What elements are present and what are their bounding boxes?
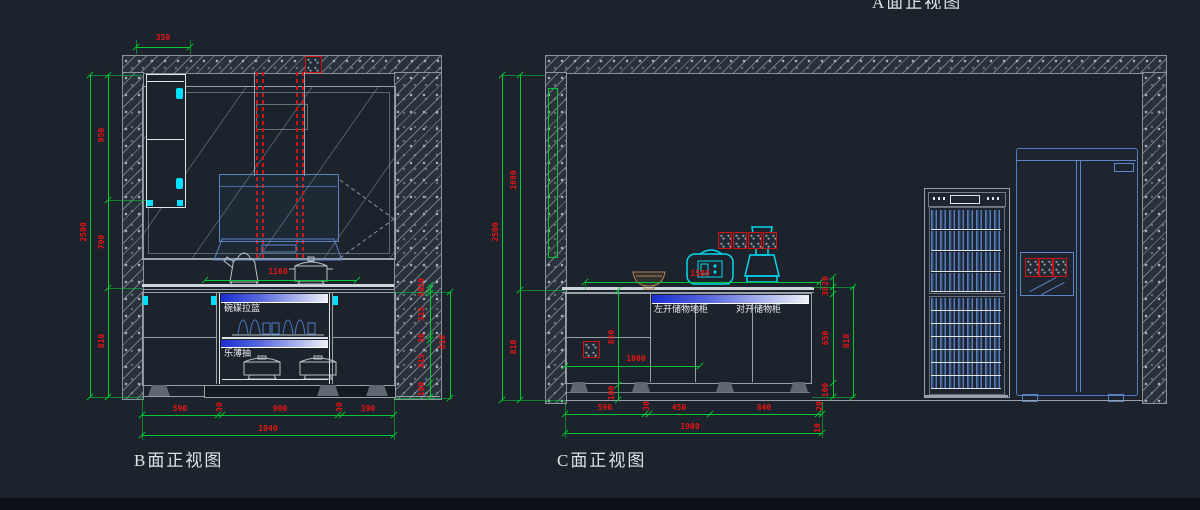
wine-cabinet-knobs (933, 197, 945, 200)
pots-in-drawer-icon (238, 352, 350, 380)
wall-left-b (122, 72, 144, 400)
dim-text: 590 (173, 405, 187, 413)
countertop-b-line (142, 289, 394, 290)
duct-side-line (254, 72, 255, 176)
outlet-icon (1025, 258, 1039, 277)
drawer-rail (219, 293, 220, 384)
outlet-icon (763, 232, 777, 249)
range-hood-body (219, 174, 339, 242)
dim-text: 1500 (690, 270, 709, 278)
view-c-title: C面正视图 (557, 446, 646, 471)
dim-ext-line (502, 400, 565, 401)
countertop-b (142, 284, 394, 287)
hood-projection-dashed (338, 176, 396, 262)
dim-text: 2500 (80, 222, 88, 241)
dim-tick (353, 276, 360, 283)
fridge-foot (1108, 394, 1124, 402)
wine-bottles-row (931, 350, 1001, 363)
dim-text: 810 (439, 335, 447, 349)
dim-text: 30 (216, 402, 224, 412)
dim-ext-line (520, 290, 565, 291)
wine-bottles-row (931, 337, 1001, 350)
view-a-title: A面正视图 (872, 0, 962, 9)
cabinet-hinge-icon (211, 296, 216, 305)
wine-bottles-row (931, 231, 1001, 251)
dim-text: 1940 (258, 425, 277, 433)
dim-text: 390 (361, 405, 375, 413)
wine-bottles-row (931, 363, 1001, 376)
base-divider (650, 293, 651, 382)
dim-text: 100 (822, 383, 830, 397)
dim-text: 1900 (680, 423, 699, 431)
view-a-title-clip: A面正视图 (872, 0, 1012, 9)
wall-cabinet-top-line (146, 81, 184, 82)
base-shelf-line (142, 337, 216, 338)
dim-line (565, 366, 700, 367)
dim-ext-line (142, 398, 143, 440)
dim-line (585, 282, 820, 283)
bowl-icon (630, 264, 668, 290)
pot-icon (286, 254, 336, 286)
dim-line (142, 415, 394, 416)
dim-text: 30 (418, 333, 426, 343)
dim-text: 315 (418, 307, 426, 321)
range-hood-line (219, 186, 337, 187)
dim-ext-line (90, 75, 142, 76)
dim-line (142, 435, 394, 436)
dim-text: 1000 (626, 355, 645, 363)
dim-text: 100 (418, 382, 426, 396)
drawer-bottom-strip (221, 340, 328, 348)
wall-right-b (394, 72, 442, 400)
dim-ext-line (394, 398, 395, 440)
cabinet-hinge-icon (333, 296, 338, 305)
dim-line (853, 287, 854, 397)
toe-kick-line (565, 392, 810, 393)
wine-bottles-row (931, 273, 1001, 292)
drawer-top-strip (221, 294, 328, 303)
dim-line (520, 75, 521, 400)
dim-ext-line (585, 282, 586, 290)
dim-ext-line (822, 402, 823, 438)
wine-cabinet-base (924, 395, 1008, 397)
outlet-icon (718, 232, 732, 249)
dim-line (205, 280, 357, 281)
dim-ext-line (812, 397, 855, 398)
wine-cabinet-display (950, 195, 980, 204)
wall-top-c (545, 55, 1167, 74)
dim-text: 810 (843, 334, 851, 348)
wine-cabinet-knobs (987, 197, 999, 200)
dim-text: 850 (608, 330, 616, 344)
drawer-shelf-line (222, 337, 328, 339)
cabinet-hinge-icon (177, 200, 183, 206)
wall-right-c (1142, 72, 1167, 404)
dim-ext-line (394, 292, 452, 293)
dim-text: 900 (273, 405, 287, 413)
outlet-icon (733, 232, 747, 249)
cad-canvas: 碗碟拉篮 乐薄抽 (0, 0, 1200, 510)
dim-line (565, 414, 822, 415)
fridge-foot (1022, 394, 1038, 402)
dim-text: 700 (98, 235, 106, 249)
dim-text: 2500 (492, 222, 500, 241)
fridge-door-divider (1080, 160, 1081, 392)
dim-text: 1690 (510, 170, 518, 189)
cabinet-hinge-icon (143, 296, 148, 305)
dim-text: 100 (608, 386, 616, 400)
cabinet-hinge-icon (176, 88, 183, 99)
dim-ext-line (394, 398, 452, 399)
dim-line (136, 47, 190, 48)
dim-text: 1160 (268, 268, 287, 276)
dim-text: 30 (643, 401, 651, 411)
dim-ext-line (90, 397, 142, 398)
dim-text: 20 (822, 276, 830, 286)
wall-cabinet-shelf-line (146, 139, 184, 140)
dim-text: 315 (418, 354, 426, 368)
dim-line (450, 292, 451, 398)
dim-line (90, 75, 91, 397)
dim-ext-line (108, 288, 142, 289)
dim-ext-line (565, 402, 566, 438)
drawer-shelf-line (222, 379, 328, 380)
base-divider (752, 303, 753, 382)
dim-text: 810 (510, 340, 518, 354)
wine-bottles-row (931, 252, 1001, 272)
dim-text: 590 (598, 404, 612, 412)
cabinet-hinge-icon (176, 178, 183, 189)
fridge-handle (1114, 163, 1134, 172)
cabinet-top-strip (652, 295, 809, 304)
dim-text: 10 (814, 423, 822, 433)
dim-text: 840 (757, 404, 771, 412)
base-divider (216, 292, 217, 384)
base-shelf-line (332, 337, 394, 338)
dim-line (502, 75, 503, 400)
floor-line-c (565, 400, 1142, 401)
dim-line (565, 433, 822, 434)
wine-bottles-row (931, 210, 1001, 230)
cabinet-hinge-icon (147, 200, 153, 206)
outlet-icon (583, 341, 600, 358)
wall-recess (548, 88, 558, 258)
bottom-edge-bar (0, 498, 1200, 510)
dim-line (108, 75, 109, 397)
outlet-icon (748, 232, 762, 249)
wine-bottles-row (931, 311, 1001, 324)
dim-text: 30 (336, 402, 344, 412)
dim-text: 810 (98, 334, 106, 348)
rice-cooker-icon (684, 246, 738, 290)
fridge-door-divider (1076, 160, 1077, 392)
dim-text: 350 (156, 34, 170, 42)
wine-bottles-row (931, 298, 1001, 311)
flue-tag-icon (305, 56, 322, 73)
cabinet-right-label: 对开储物柜 (736, 305, 781, 314)
view-b-title: B面正视图 (134, 446, 223, 471)
base-divider (695, 303, 696, 382)
plinth-b (204, 385, 396, 398)
dim-text: 450 (672, 404, 686, 412)
cabinet-left-label: 左开储物地柜 (654, 305, 708, 314)
dim-text: 950 (98, 128, 106, 142)
wine-bottles-row (931, 376, 1001, 389)
dim-ext-line (812, 287, 855, 288)
dim-text: 650 (822, 331, 830, 345)
wine-bottles-row (931, 324, 1001, 337)
dish-rack-icon (230, 310, 326, 337)
cabinet-foot (148, 385, 170, 396)
outlet-icon (1053, 258, 1067, 277)
dim-ext-line (108, 200, 146, 201)
outlet-icon (1039, 258, 1053, 277)
dim-ext-line (502, 75, 545, 76)
